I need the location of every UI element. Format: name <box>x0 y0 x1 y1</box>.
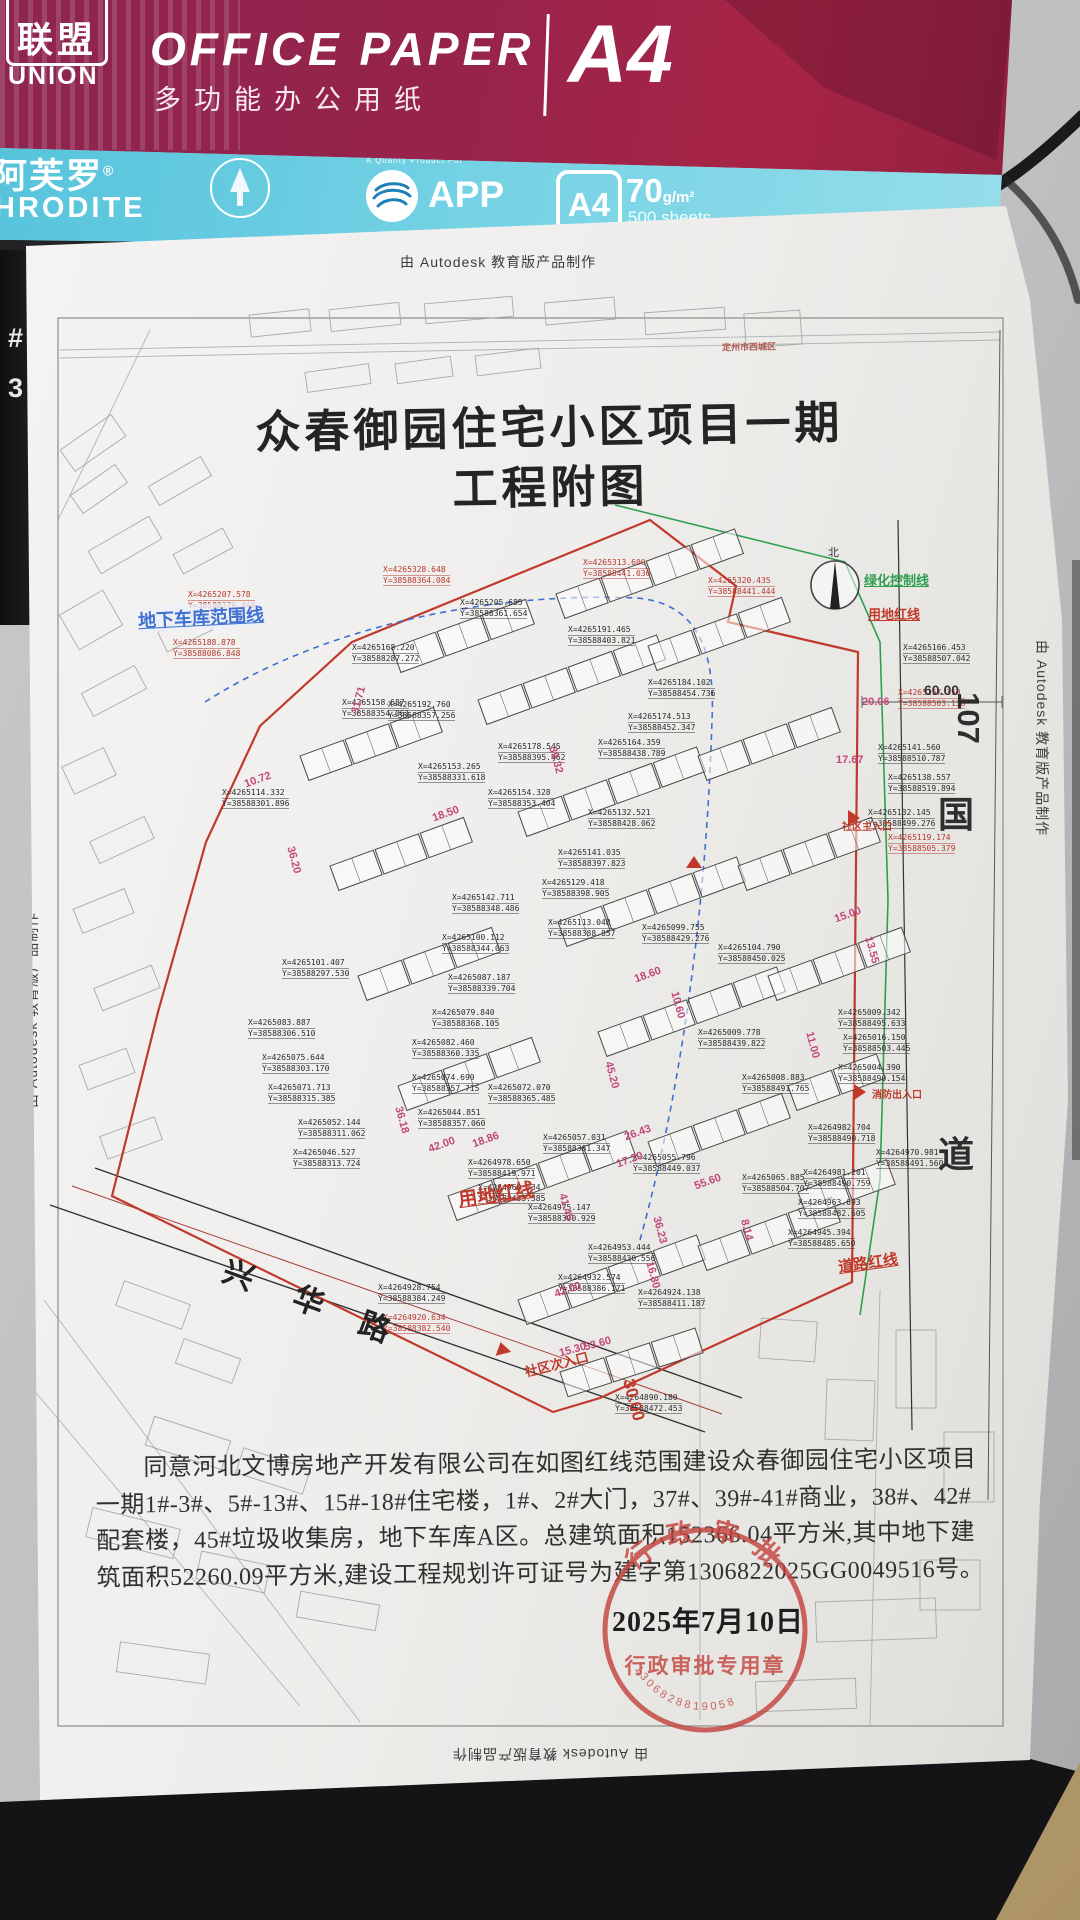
coordinate-label: X=4264981.201Y=38588490.759 <box>803 1168 870 1189</box>
coordinate-label: X=4265320.435Y=38588441.444 <box>708 576 775 597</box>
plan-label: 定州市西城区 <box>722 340 776 354</box>
coordinate-label: X=4265100.112Y=38588344.063 <box>442 933 509 954</box>
plan-label: 道路红线 <box>837 1248 899 1277</box>
plan-label: 用地红线 <box>456 1175 535 1212</box>
coordinate-label: X=4264953.444Y=38588430.556 <box>588 1243 655 1264</box>
dimension-label: 17.67 <box>836 754 864 766</box>
weight-unit: g/m² <box>663 189 695 206</box>
dimension-label: 15.00 <box>833 905 863 926</box>
weight-number: 70 <box>626 172 663 209</box>
dimension-label: 18.60 <box>633 965 663 986</box>
ream-size-label: A4 <box>568 8 673 102</box>
union-logo-sub: UNION <box>8 62 99 91</box>
app-logo-icon <box>364 168 420 224</box>
coordinate-label: X=4265071.713Y=38588315.385 <box>268 1083 335 1104</box>
coordinate-label: X=4265083.887Y=38588306.510 <box>248 1018 315 1039</box>
app-label: APP <box>428 174 504 216</box>
entrance-triangle-icon <box>686 856 702 868</box>
dimension-label: 16.80 <box>643 1260 662 1290</box>
dimension-label: 18.50 <box>431 804 461 825</box>
coordinate-label: X=4265113.048Y=38588388.857 <box>548 918 615 939</box>
coordinate-label: X=4265079.840Y=38588368.105 <box>432 1008 499 1029</box>
coordinate-label: X=4265057.031Y=38588361.347 <box>543 1133 610 1154</box>
dimension-label: 8.14 <box>738 1218 755 1242</box>
coordinate-label: X=4265004.390Y=38588490.154 <box>838 1063 905 1084</box>
coordinate-label: X=4265044.851Y=38588357.060 <box>418 1108 485 1129</box>
coordinate-label: X=4265009.778Y=38588439.822 <box>698 1028 765 1049</box>
coordinate-label: X=4264963.693Y=38588482.605 <box>798 1198 865 1219</box>
union-logo-chars: 联盟 <box>17 11 97 63</box>
road-name-guo: 国 <box>938 786 974 838</box>
plan-label: 社区次入口 <box>523 1346 591 1380</box>
dimension-label: 30.00 <box>618 1377 648 1423</box>
dimension-label: 13.55 <box>862 935 881 965</box>
ream-title-en: OFFICE PAPER <box>150 22 535 76</box>
plan-label: 地下车库范围线 <box>137 601 264 634</box>
plan-label: 用地红线 <box>868 604 920 623</box>
entrance-triangle-icon <box>493 1340 511 1356</box>
coordinate-label: X=4264945.394Y=38588485.650 <box>788 1228 855 1249</box>
coordinate-label: X=4265164.359Y=38588438.789 <box>598 738 665 759</box>
coordinate-label: X=4265082.460Y=38588360.335 <box>412 1038 479 1059</box>
union-logo: 联盟 <box>6 0 108 66</box>
coordinate-label: X=4265074.690Y=38588357.715 <box>412 1073 479 1094</box>
coordinate-label: X=4265008.883Y=38588491.765 <box>742 1073 809 1094</box>
coordinate-label: X=4265153.265Y=38588331.618 <box>418 762 485 783</box>
plan-label: 消防出入口 <box>872 1086 922 1101</box>
approval-paragraph: 同意河北文博房地产开发有限公司在如图红线范围建设众春御园住宅小区项目 一期1#-… <box>95 1441 998 1596</box>
keyboard-key-3: 3 <box>8 373 23 404</box>
coordinate-label: X=4265154.328Y=38588353.404 <box>488 788 555 809</box>
entrance-triangle-icon <box>854 1084 866 1100</box>
coordinate-label: X=4265132.521Y=38588428.062 <box>588 808 655 829</box>
stamp-center-text: 行政审批专用章 <box>624 1654 786 1678</box>
plan-annotations: X=4265205.685Y=38588361.654X=4265191.465… <box>0 0 1080 1920</box>
dimension-label: 42.00 <box>427 1135 457 1156</box>
dimension-label: 55.60 <box>693 1172 723 1193</box>
coordinate-label: X=4265099.755Y=38588429.276 <box>642 923 709 944</box>
coordinate-label: X=4265184.102Y=38588454.736 <box>648 678 715 699</box>
coordinate-label: X=4265075.644Y=38588303.170 <box>262 1053 329 1074</box>
coordinate-label: X=4265114.332Y=38588301.896 <box>222 788 289 809</box>
coordinate-label: X=4265046.527Y=38588313.724 <box>293 1148 360 1169</box>
document-paper: 由 Autodesk 教育版产品制作 由 Autodesk 教育版产品制作 由 … <box>0 0 1080 1920</box>
coordinate-label: X=4264928.754Y=38588384.249 <box>378 1283 445 1304</box>
coordinate-label: X=4265166.453Y=38588507.042 <box>903 643 970 664</box>
coordinate-label: X=4265101.407Y=38588297.530 <box>282 958 349 979</box>
coordinate-label: X=4264970.981Y=38588491.560 <box>876 1148 943 1169</box>
registered-mark: ® <box>103 162 115 178</box>
ream-title-cn: 多功能办公用纸 <box>154 78 434 117</box>
dimension-label: 11.00 <box>803 1030 822 1059</box>
photo-canvas: # 3 联盟 UNION OFFICE PAPER 多功能办公用纸 A4 阿芙罗… <box>0 0 1080 1920</box>
dimension-label: 18.86 <box>471 1130 501 1151</box>
forest-logo-icon <box>208 152 272 224</box>
coordinate-label: X=4265168.220Y=38588287.272 <box>352 643 419 664</box>
coordinate-label: X=4265141.035Y=38588397.823 <box>558 848 625 869</box>
keyboard-key-hash: # <box>8 323 23 354</box>
dimension-label: 26.43 <box>623 1123 653 1144</box>
coordinate-label: X=4265052.144Y=38588311.062 <box>298 1118 365 1139</box>
coordinate-label: X=4265141.560Y=38588510.787 <box>878 743 945 764</box>
dimension-label: 36.18 <box>392 1105 411 1135</box>
coordinate-label: X=4265072.070Y=38588365.485 <box>488 1083 555 1104</box>
coordinate-label: X=4265174.513Y=38588452.347 <box>628 712 695 733</box>
coordinate-label: X=4264982.704Y=38588490.718 <box>808 1123 875 1144</box>
road-name-107: 107 <box>950 692 986 744</box>
coordinate-label: X=4265065.885Y=38588504.707 <box>742 1173 809 1194</box>
dimension-label: 45.20 <box>602 1060 621 1090</box>
dimension-label: 36.20 <box>284 845 303 875</box>
brand-chars: 阿芙罗 <box>0 157 103 196</box>
road-name-dao: 道 <box>938 1126 974 1178</box>
desk-edge <box>1072 560 1080 1160</box>
coordinate-label: X=4264924.138Y=38588411.187 <box>638 1288 705 1309</box>
approval-date: 2025年7月10日 <box>612 1600 804 1640</box>
coordinate-label: X=4265142.711Y=38588348.486 <box>452 893 519 914</box>
coordinate-label: X=4265009.342Y=38588495.633 <box>838 1008 905 1029</box>
coordinate-label: X=4265313.600Y=38588441.036 <box>583 558 650 579</box>
svg-text:行政审批: 行政审批 <box>619 1514 799 1583</box>
box-fold-shade <box>700 0 1012 160</box>
coordinate-label: X=4265104.790Y=38588450.025 <box>718 943 785 964</box>
coordinate-label: X=4265087.187Y=38588339.704 <box>448 973 515 994</box>
dimension-label: 10.60 <box>668 990 687 1020</box>
dimension-label: 20.06 <box>862 696 890 708</box>
coordinate-label: X=4265328.648Y=38588364.084 <box>383 565 450 586</box>
brand-name-en: HRODITE <box>0 192 146 225</box>
coordinate-label: X=4265188.878Y=38588086.848 <box>173 638 240 659</box>
plan-label: 绿化控制线 <box>864 570 929 589</box>
divider <box>543 14 550 116</box>
coordinate-label: X=4265191.465Y=38588403.821 <box>568 625 635 646</box>
entrance-triangle-icon <box>848 810 860 826</box>
paper-weight: 70g/m² <box>626 172 694 210</box>
coordinate-label: X=4265129.418Y=38588398.905 <box>542 878 609 899</box>
coordinate-label: X=4265016.150Y=38588503.445 <box>843 1033 910 1054</box>
dimension-label: 53.60 <box>583 1335 613 1354</box>
dimension-label: 36.23 <box>650 1215 669 1245</box>
stamp-arc-text: 行政审批 <box>619 1514 799 1583</box>
coordinate-label: X=4265205.685Y=38588361.654 <box>460 598 527 619</box>
